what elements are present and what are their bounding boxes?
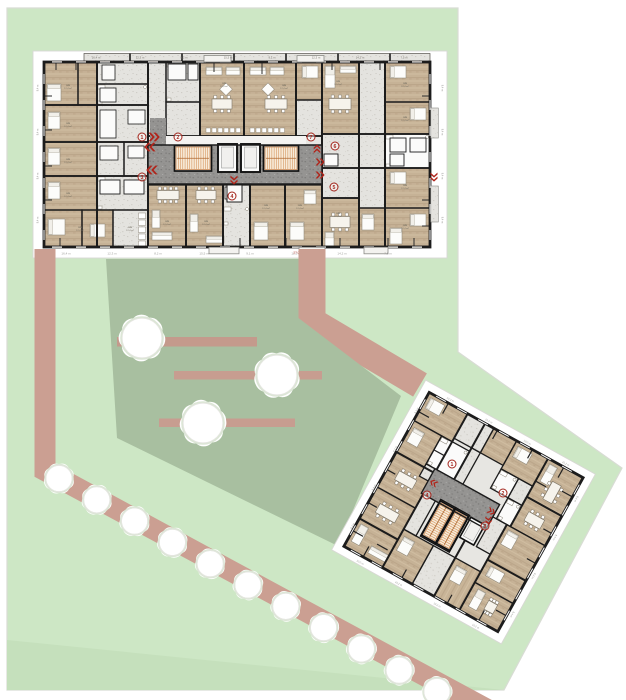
svg-text:7: 7: [310, 135, 313, 141]
svg-text:9,1 m: 9,1 m: [269, 56, 277, 60]
svg-text:8,2 m: 8,2 m: [154, 252, 162, 256]
svg-text:15,5 m: 15,5 m: [224, 56, 233, 60]
svg-text:oda: oda: [403, 184, 408, 187]
svg-text:oda: oda: [298, 204, 303, 207]
svg-text:oda: oda: [204, 220, 209, 223]
svg-text:8,2 m: 8,2 m: [181, 56, 189, 60]
svg-text:8,4 m: 8,4 m: [441, 173, 445, 180]
svg-text:oda: oda: [403, 82, 408, 85]
svg-text:12,3 m: 12,3 m: [312, 56, 321, 60]
svg-text:4: 4: [231, 194, 234, 200]
svg-text:8,4 m: 8,4 m: [36, 173, 40, 180]
svg-text:oda: oda: [78, 226, 83, 229]
svg-text:5: 5: [333, 185, 336, 191]
svg-text:4: 4: [426, 493, 429, 499]
svg-text:oda: oda: [403, 224, 408, 227]
svg-text:12,3 m: 12,3 m: [107, 252, 117, 256]
svg-text:12,4 m²: 12,4 m²: [220, 85, 228, 88]
svg-text:12,4 m²: 12,4 m²: [64, 87, 72, 90]
svg-text:8,4 m: 8,4 m: [36, 217, 40, 224]
svg-text:1: 1: [141, 135, 144, 141]
svg-text:12,4 m²: 12,4 m²: [64, 161, 72, 164]
svg-text:1: 1: [451, 462, 454, 468]
svg-text:oda: oda: [66, 122, 71, 125]
svg-text:oda: oda: [264, 204, 269, 207]
svg-text:12,4 m²: 12,4 m²: [64, 125, 72, 128]
svg-text:12,4 m²: 12,4 m²: [296, 207, 304, 210]
svg-text:12,4 m²: 12,4 m²: [280, 87, 288, 90]
svg-text:12,4 m²: 12,4 m²: [401, 227, 409, 230]
svg-text:12,4 m²: 12,4 m²: [126, 229, 134, 232]
svg-text:12,4 m²: 12,4 m²: [334, 83, 342, 86]
svg-text:7,5 m: 7,5 m: [401, 56, 409, 60]
svg-text:12,4 m²: 12,4 m²: [163, 223, 171, 226]
svg-text:oda: oda: [336, 80, 341, 83]
svg-text:3: 3: [484, 524, 487, 530]
svg-text:16,4 m: 16,4 m: [61, 252, 71, 256]
svg-text:12,4 m²: 12,4 m²: [334, 215, 342, 218]
svg-text:16,4 m: 16,4 m: [92, 56, 101, 60]
svg-text:15,5 m: 15,5 m: [199, 252, 209, 256]
svg-text:12,4 m²: 12,4 m²: [401, 187, 409, 190]
svg-text:oda: oda: [222, 82, 227, 85]
svg-text:6: 6: [334, 144, 337, 150]
svg-text:oda: oda: [336, 212, 341, 215]
svg-text:2: 2: [177, 135, 180, 141]
svg-text:3: 3: [141, 175, 144, 181]
svg-text:7,5 m: 7,5 m: [384, 252, 392, 256]
svg-text:8,4 m: 8,4 m: [36, 129, 40, 136]
svg-text:oda: oda: [66, 158, 71, 161]
svg-text:oda: oda: [128, 226, 133, 229]
svg-text:oda: oda: [66, 84, 71, 87]
svg-text:14,2 m: 14,2 m: [337, 252, 347, 256]
svg-text:oda: oda: [403, 116, 408, 119]
svg-text:12,4 m²: 12,4 m²: [202, 223, 210, 226]
svg-text:oda: oda: [66, 192, 71, 195]
svg-text:12,4 m²: 12,4 m²: [401, 85, 409, 88]
svg-text:12,3 m: 12,3 m: [136, 56, 145, 60]
svg-text:8,4 m: 8,4 m: [441, 217, 445, 224]
svg-text:12,4 m²: 12,4 m²: [76, 229, 84, 232]
svg-text:8,4 m: 8,4 m: [441, 129, 445, 136]
svg-text:oda: oda: [165, 220, 170, 223]
svg-text:oda: oda: [282, 84, 287, 87]
svg-text:2: 2: [502, 491, 505, 497]
svg-text:12,4 m²: 12,4 m²: [262, 207, 270, 210]
svg-text:8,4 m: 8,4 m: [36, 85, 40, 92]
svg-text:8,4 m: 8,4 m: [441, 85, 445, 92]
svg-text:12,4 m²: 12,4 m²: [64, 195, 72, 198]
svg-text:12,4 m²: 12,4 m²: [401, 119, 409, 122]
svg-text:14,2 m: 14,2 m: [356, 56, 365, 60]
svg-text:9,1 m: 9,1 m: [246, 252, 254, 256]
